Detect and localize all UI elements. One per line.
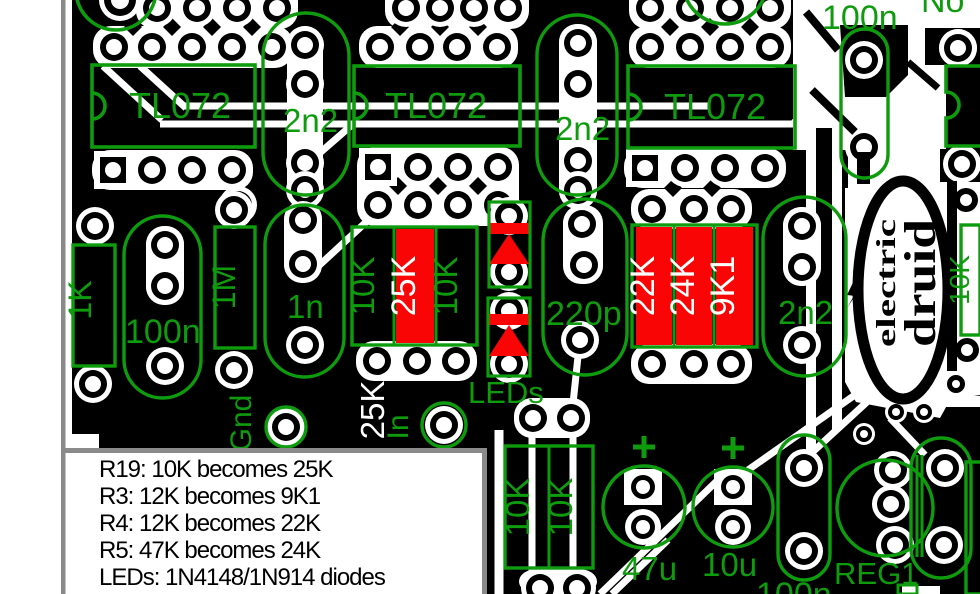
svg-text:100n: 100n: [822, 0, 898, 37]
svg-text:TL072: TL072: [664, 86, 766, 127]
svg-text:100n: 100n: [756, 576, 832, 594]
svg-text:22K: 22K: [624, 255, 662, 316]
svg-text:R4: 12K becomes 22K: R4: 12K becomes 22K: [99, 510, 321, 537]
svg-text:25K: 25K: [385, 255, 423, 316]
svg-text:LEDs: 1N4148/1N914 diodes: LEDs: 1N4148/1N914 diodes: [99, 564, 386, 591]
svg-text:R5: 47K becomes 24K: R5: 47K becomes 24K: [99, 537, 321, 564]
svg-text:10K: 10K: [542, 478, 579, 537]
svg-text:10K: 10K: [427, 257, 464, 316]
svg-text:1M: 1M: [206, 265, 242, 309]
svg-text:10K: 10K: [344, 257, 381, 316]
svg-text:100n: 100n: [125, 313, 201, 351]
svg-text:1n: 1n: [287, 288, 324, 325]
svg-text:2n2: 2n2: [555, 110, 610, 147]
svg-text:R19: 10K becomes 25K: R19: 10K becomes 25K: [99, 456, 333, 483]
svg-text:24K: 24K: [664, 255, 702, 316]
svg-text:In: In: [382, 414, 415, 439]
svg-text:10K: 10K: [944, 255, 975, 305]
svg-text:10K: 10K: [499, 478, 536, 537]
svg-text:No: No: [921, 0, 964, 20]
svg-text:2n2: 2n2: [283, 102, 338, 139]
svg-text:R3: 12K becomes 9K1: R3: 12K becomes 9K1: [99, 483, 321, 510]
svg-text:LEDs: LEDs: [468, 375, 544, 410]
svg-text:Gnd: Gnd: [225, 395, 258, 452]
svg-text:1K: 1K: [62, 280, 98, 319]
svg-text:220p: 220p: [546, 295, 622, 333]
svg-text:47u: 47u: [622, 550, 677, 587]
svg-text:9K1: 9K1: [704, 256, 742, 317]
svg-text:druid: druid: [896, 219, 945, 347]
svg-text:TL072: TL072: [385, 85, 487, 126]
svg-text:TL072: TL072: [129, 85, 231, 126]
svg-text:10u: 10u: [702, 546, 757, 583]
svg-text:2n2: 2n2: [778, 294, 833, 331]
